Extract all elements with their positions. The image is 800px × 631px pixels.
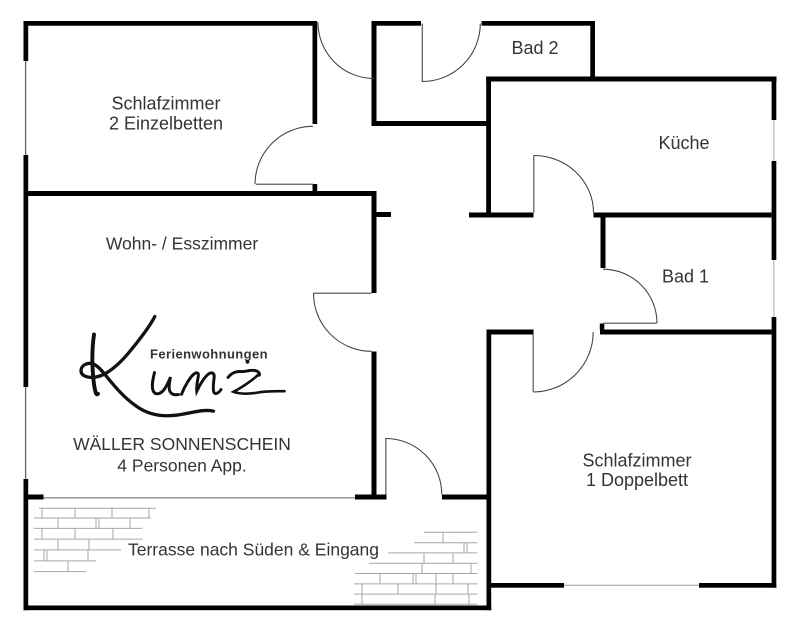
svg-text:1 Doppelbett: 1 Doppelbett (586, 470, 688, 490)
svg-text:2 Einzelbetten: 2 Einzelbetten (109, 114, 223, 134)
svg-text:Ferienwohnungen: Ferienwohnungen (150, 347, 268, 362)
svg-text:Schlafzimmer: Schlafzimmer (111, 94, 220, 114)
svg-text:WÄLLER SONNENSCHEIN: WÄLLER SONNENSCHEIN (73, 434, 291, 454)
svg-text:Küche: Küche (658, 133, 709, 153)
svg-text:Bad 2: Bad 2 (511, 38, 558, 58)
svg-text:Terrasse nach Süden & Eingang: Terrasse nach Süden & Eingang (128, 539, 379, 559)
svg-text:4 Personen App.: 4 Personen App. (117, 456, 246, 476)
svg-text:Bad 1: Bad 1 (662, 266, 709, 286)
svg-text:Schlafzimmer: Schlafzimmer (582, 450, 691, 470)
svg-text:Wohn- / Esszimmer: Wohn- / Esszimmer (106, 233, 259, 253)
